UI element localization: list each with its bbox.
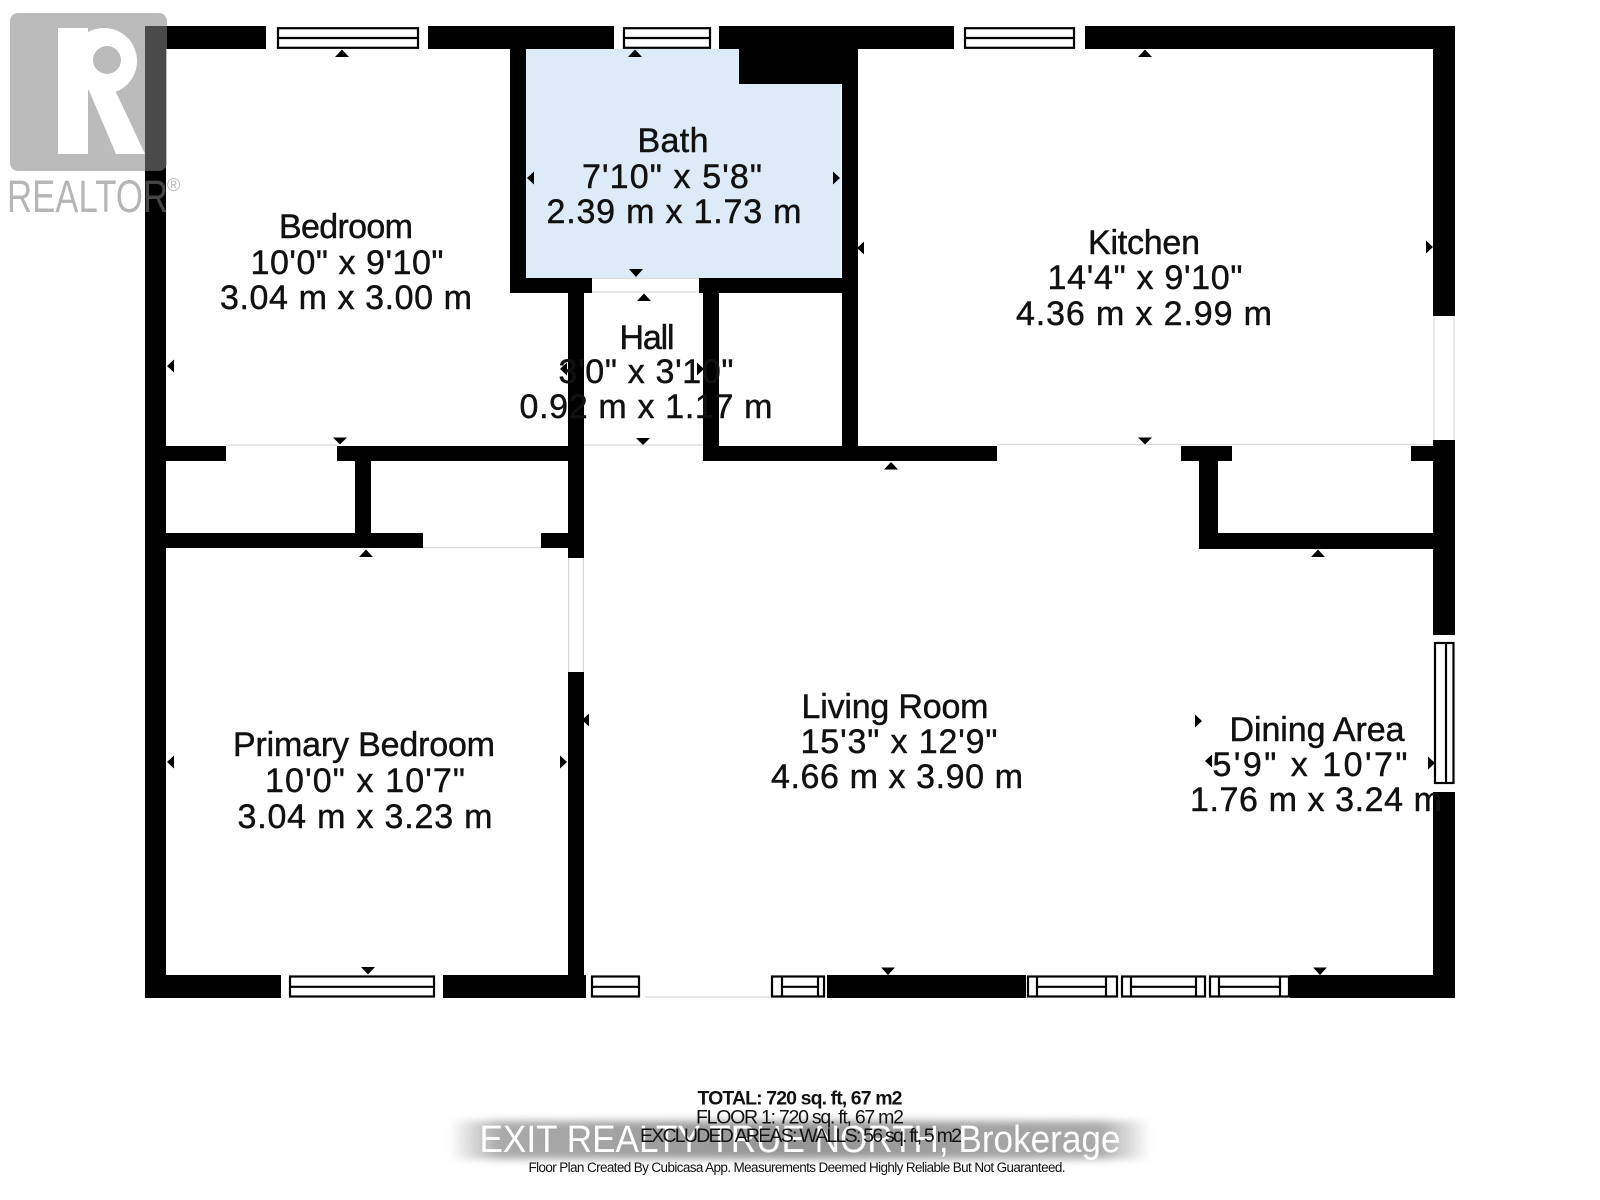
svg-text:4.66 m x 3.90 m: 4.66 m x 3.90 m bbox=[771, 758, 1023, 796]
svg-text:10'0" x 10'7": 10'0" x 10'7" bbox=[265, 762, 465, 800]
svg-text:7'10" x 5'8": 7'10" x 5'8" bbox=[582, 158, 762, 196]
svg-text:REALTOR: REALTOR bbox=[7, 171, 168, 222]
svg-text:14'4" x 9'10": 14'4" x 9'10" bbox=[1048, 259, 1243, 297]
svg-text:3.04 m x 3.23 m: 3.04 m x 3.23 m bbox=[238, 798, 493, 836]
svg-text:Kitchen: Kitchen bbox=[1088, 224, 1200, 262]
svg-text:Living Room: Living Room bbox=[802, 688, 989, 726]
svg-text:®: ® bbox=[167, 175, 180, 195]
svg-text:Floor Plan Created By Cubicasa: Floor Plan Created By Cubicasa App. Meas… bbox=[529, 1160, 1066, 1175]
svg-text:10'0" x 9'10": 10'0" x 9'10" bbox=[251, 244, 444, 282]
svg-text:Bedroom: Bedroom bbox=[279, 208, 413, 246]
svg-text:Hall: Hall bbox=[620, 319, 675, 357]
svg-text:Dining Area: Dining Area bbox=[1230, 711, 1405, 749]
svg-text:Bath: Bath bbox=[638, 122, 709, 160]
svg-text:2.39 m x 1.73 m: 2.39 m x 1.73 m bbox=[547, 193, 802, 231]
svg-text:4.36 m x 2.99 m: 4.36 m x 2.99 m bbox=[1016, 295, 1272, 333]
svg-text:3.04 m x 3.00 m: 3.04 m x 3.00 m bbox=[220, 279, 472, 317]
svg-text:Primary Bedroom: Primary Bedroom bbox=[233, 726, 495, 764]
svg-text:1.76 m x 3.24 m: 1.76 m x 3.24 m bbox=[1190, 781, 1442, 819]
svg-text:3'0" x 3'10": 3'0" x 3'10" bbox=[559, 353, 734, 391]
svg-text:15'3" x 12'9": 15'3" x 12'9" bbox=[801, 723, 998, 761]
svg-text:EXCLUDED AREAS: WALLS: 56 sq.: EXCLUDED AREAS: WALLS: 56 sq. ft, 5 m2 bbox=[640, 1125, 962, 1147]
svg-text:0.92 m x 1.17 m: 0.92 m x 1.17 m bbox=[520, 388, 773, 426]
